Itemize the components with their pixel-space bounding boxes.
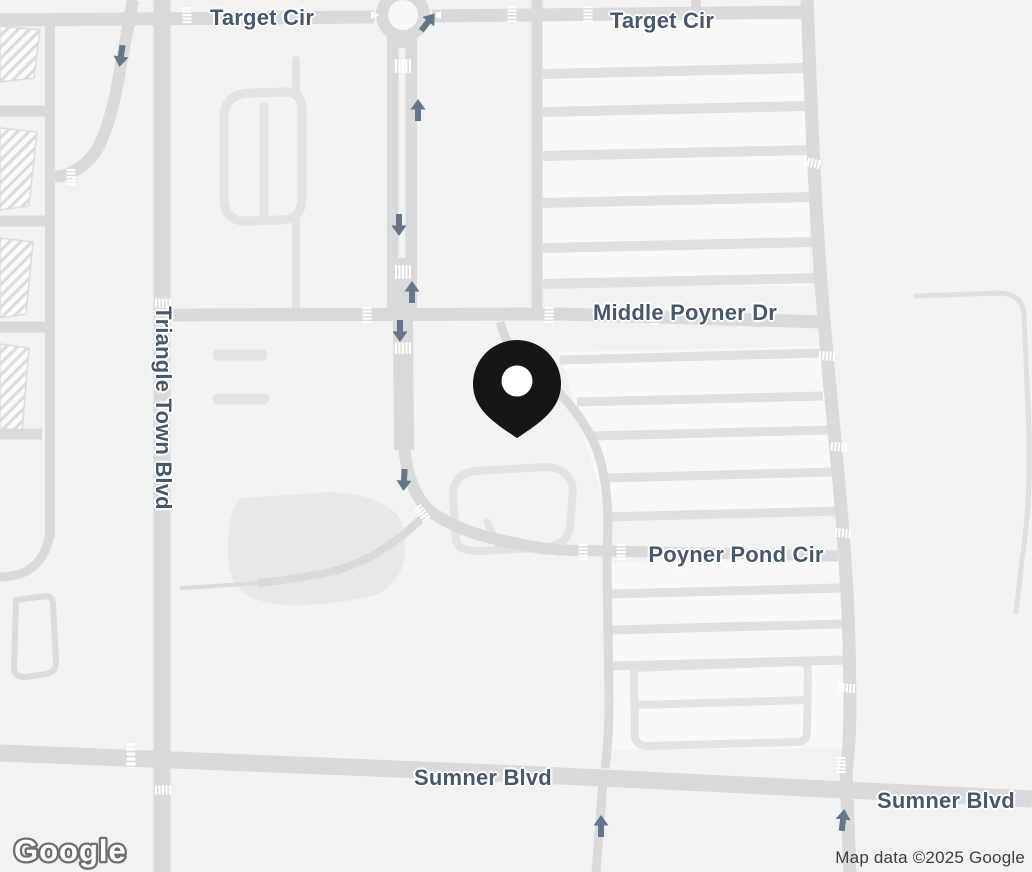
city-blocks [543,20,850,750]
hatched-areas [0,26,40,436]
road-middle-poyner-dr [172,314,822,322]
road-poyner-pond-cir [545,548,838,556]
road-left-curve [0,532,50,577]
road-central-curve [404,445,548,549]
road-inner-south [605,560,609,768]
google-logo[interactable]: Google [14,833,127,868]
map-attribution: Map data ©2025 Google [835,848,1025,868]
map-graphics: Google [0,0,1032,872]
location-pin-icon [473,340,561,438]
road-left-diagonal [46,0,133,177]
map-canvas[interactable]: Google Target Cir Target Cir Middle Poyn… [0,0,1032,872]
road-target-cir-east [432,12,810,16]
road-central-south [403,320,404,450]
